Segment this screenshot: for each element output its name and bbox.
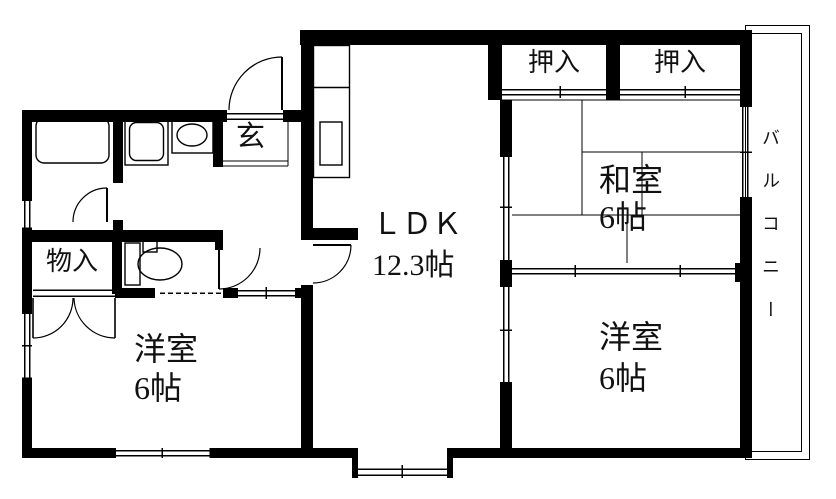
toilet-icon — [125, 240, 182, 285]
entry-sill — [227, 114, 283, 120]
entrance-label: 玄 — [236, 121, 265, 153]
wall-segment — [112, 242, 122, 294]
kitchen-counter-icon — [314, 46, 350, 178]
wall-segment — [447, 448, 453, 478]
wall-segment — [352, 448, 358, 478]
wall-segment — [301, 30, 313, 240]
washitsu-name: 和室 — [599, 162, 663, 199]
wall-segment — [488, 45, 502, 100]
slider-washitsu-bedroom — [512, 265, 735, 277]
ldk-door — [313, 245, 351, 283]
storage-double-door — [33, 298, 115, 338]
fusuma-closet-right — [620, 86, 740, 98]
bedroom-left-size: 6帖 — [134, 369, 198, 408]
room-label-storage: 物入 — [32, 246, 112, 278]
washbasin-icon — [172, 118, 213, 153]
storage-label: 物入 — [46, 247, 98, 276]
closet-right-label: 押入 — [654, 48, 706, 77]
closet-left-label: 押入 — [528, 48, 580, 77]
bathroom-door — [73, 188, 107, 222]
bathtub-icon — [36, 118, 109, 163]
balcony-label: バルコニー — [760, 128, 780, 343]
ldk-size: 12.3帖 — [372, 245, 462, 286]
wall-segment — [223, 288, 238, 298]
room-label-balcony: バルコニー — [757, 128, 783, 363]
wall-segment — [301, 285, 313, 448]
bedroom-right-name: 洋室 — [599, 317, 663, 358]
room-label-bedroom-right: 洋室 6帖 — [599, 317, 663, 399]
wall-segment — [500, 382, 512, 448]
kitchen-sink-icon — [320, 122, 342, 165]
window-bedroom-left-bottom — [115, 448, 210, 458]
wall-segment — [453, 448, 752, 458]
ldk-name: ＬＤＫ — [372, 204, 462, 245]
wall-segment — [115, 288, 155, 298]
floor-plan: 押入 押入 和室 6帖 ＬＤＫ 12.3帖 洋室 6帖 洋室 6帖 物入 玄 バ… — [0, 0, 836, 499]
slider-hall-bedroom — [238, 287, 295, 299]
wall-segment — [500, 260, 512, 287]
wall-segment — [22, 378, 32, 458]
wall-segment — [606, 45, 620, 100]
bedroom-right-size: 6帖 — [599, 358, 663, 399]
wall-segment — [313, 228, 358, 240]
room-label-washitsu: 和室 6帖 — [599, 162, 663, 236]
wall-segment — [300, 30, 752, 45]
room-label-ldk: ＬＤＫ 12.3帖 — [372, 204, 462, 286]
washitsu-size: 6帖 — [599, 199, 663, 236]
slider-ldk-washitsu — [500, 157, 512, 260]
room-label-closet-left: 押入 — [502, 46, 606, 80]
wall-segment — [22, 110, 32, 200]
window-ldk-bay — [358, 465, 447, 478]
storage-sill — [33, 290, 115, 296]
wall-segment — [500, 100, 512, 157]
room-label-entrance: 玄 — [236, 120, 265, 154]
room-label-bedroom-left: 洋室 6帖 — [134, 330, 198, 408]
bedroom-left-name: 洋室 — [134, 330, 198, 369]
wall-segment — [295, 288, 313, 298]
wall-segment — [210, 448, 358, 458]
wall-segment — [22, 448, 115, 458]
wall-segment — [735, 263, 752, 282]
entry-door — [229, 57, 282, 110]
wall-segment — [22, 228, 32, 313]
wall-segment — [113, 122, 123, 183]
slider-ldk-bedroom — [500, 287, 512, 382]
room-label-closet-right: 押入 — [620, 46, 740, 80]
toilet-door — [219, 248, 260, 289]
window-bathroom — [22, 200, 32, 228]
window-bedroom-left-side — [22, 313, 32, 378]
wall-segment — [32, 230, 223, 242]
washer-pan-icon — [125, 118, 168, 165]
wall-segment — [213, 122, 223, 167]
fusuma-closet-left — [502, 86, 606, 98]
